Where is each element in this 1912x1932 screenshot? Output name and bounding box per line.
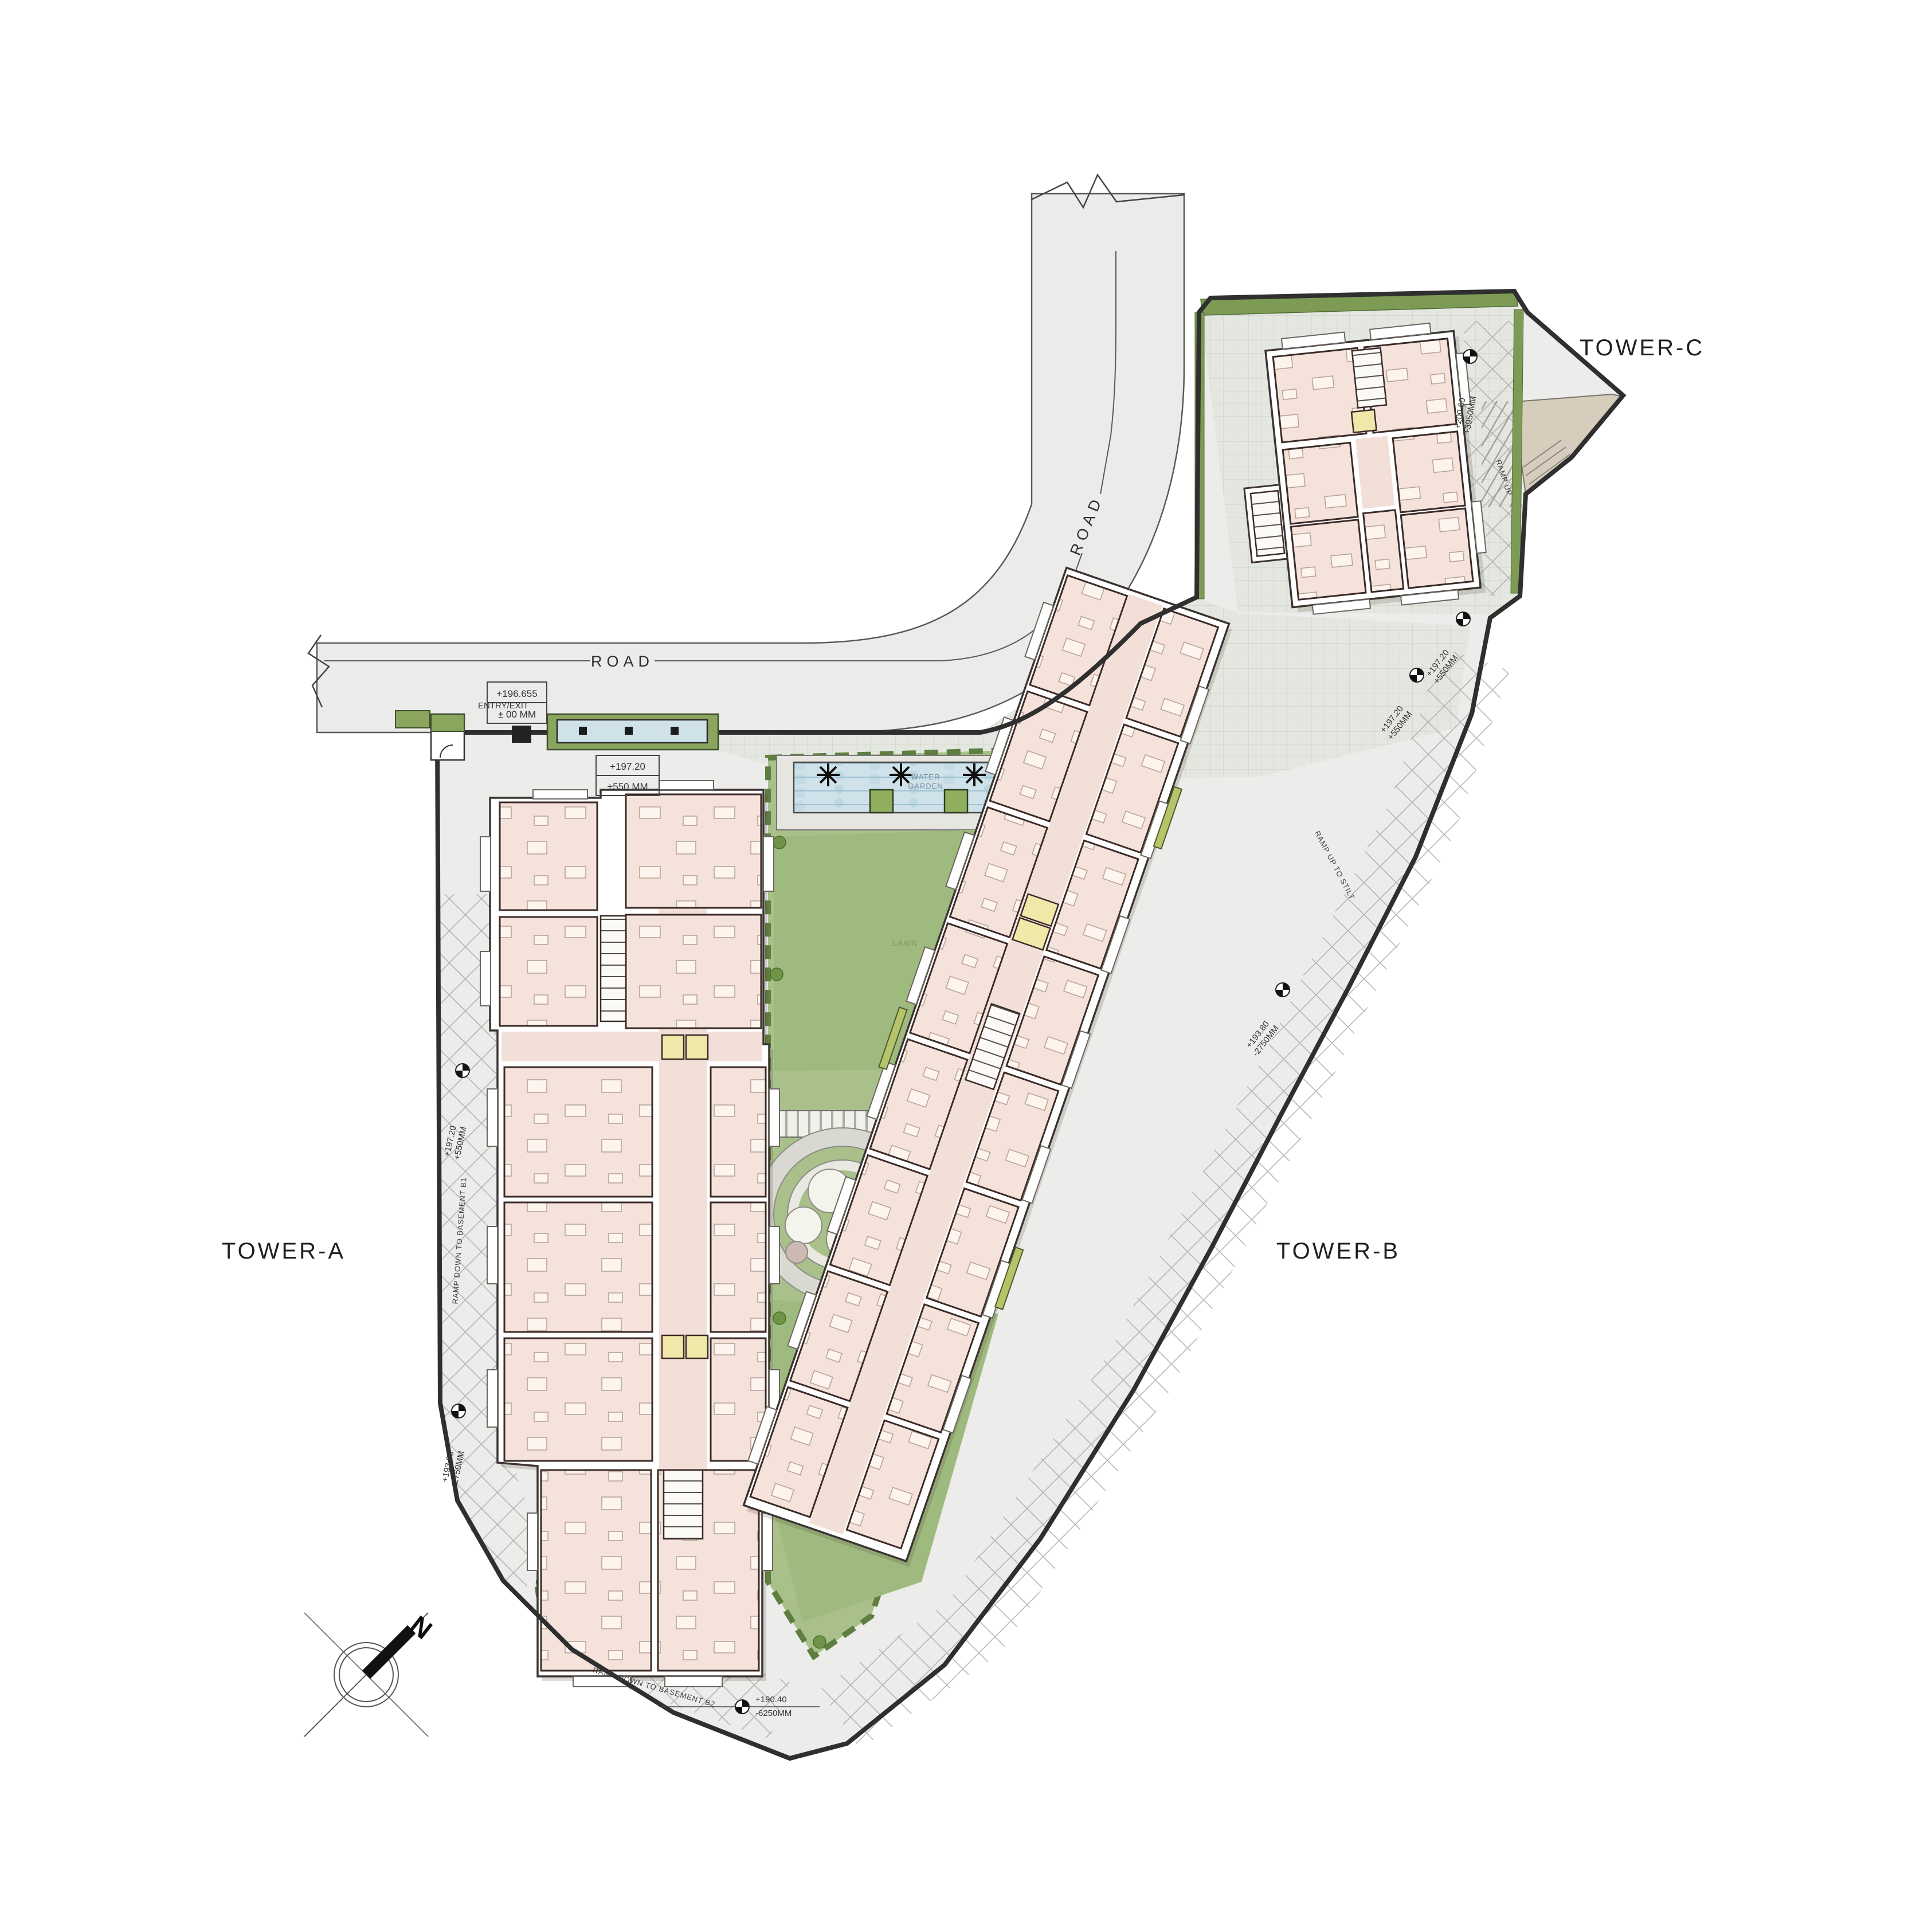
tower-a-label: TOWER-A (222, 1239, 346, 1264)
tower-a-lobby (501, 1032, 762, 1061)
tower-c-stairs-2 (1251, 491, 1284, 556)
entry-hedge (395, 711, 430, 728)
road-label-horizontal: ROAD (591, 653, 654, 670)
site-plan-canvas: WATER GARDEN LAWN LA (0, 0, 1912, 1932)
tower-a-stairs-1 (601, 916, 626, 1021)
tower-b-label: TOWER-B (1276, 1239, 1400, 1264)
level-box-road-l1: +196.655 (496, 688, 537, 699)
svg-text:+190.40: +190.40 (755, 1695, 787, 1704)
lawn-upper-label: LAWN (892, 939, 918, 947)
level-box-plaza-l1: +197.20 (610, 761, 645, 772)
site-plan-drawing: WATER GARDEN LAWN LA (0, 0, 1912, 1932)
north-arrow: N (304, 1610, 438, 1737)
svg-text:-6250MM: -6250MM (755, 1708, 792, 1718)
guard-house-planter (431, 714, 464, 731)
entry-exit-label: ENTRY/EXIT (478, 701, 528, 711)
water-garden-label-1: WATER (911, 773, 941, 781)
tower-c-stairs-1 (1352, 348, 1386, 408)
tower-a-stairs-2 (664, 1470, 703, 1539)
entry-gate (512, 726, 531, 743)
tower-c-lifts (1351, 410, 1377, 433)
tower-c-label: TOWER-C (1580, 335, 1705, 360)
north-label: N (405, 1610, 438, 1645)
water-garden-label-2: GARDEN (908, 782, 943, 790)
level-box-plaza-l2: +550 MM (607, 781, 648, 792)
